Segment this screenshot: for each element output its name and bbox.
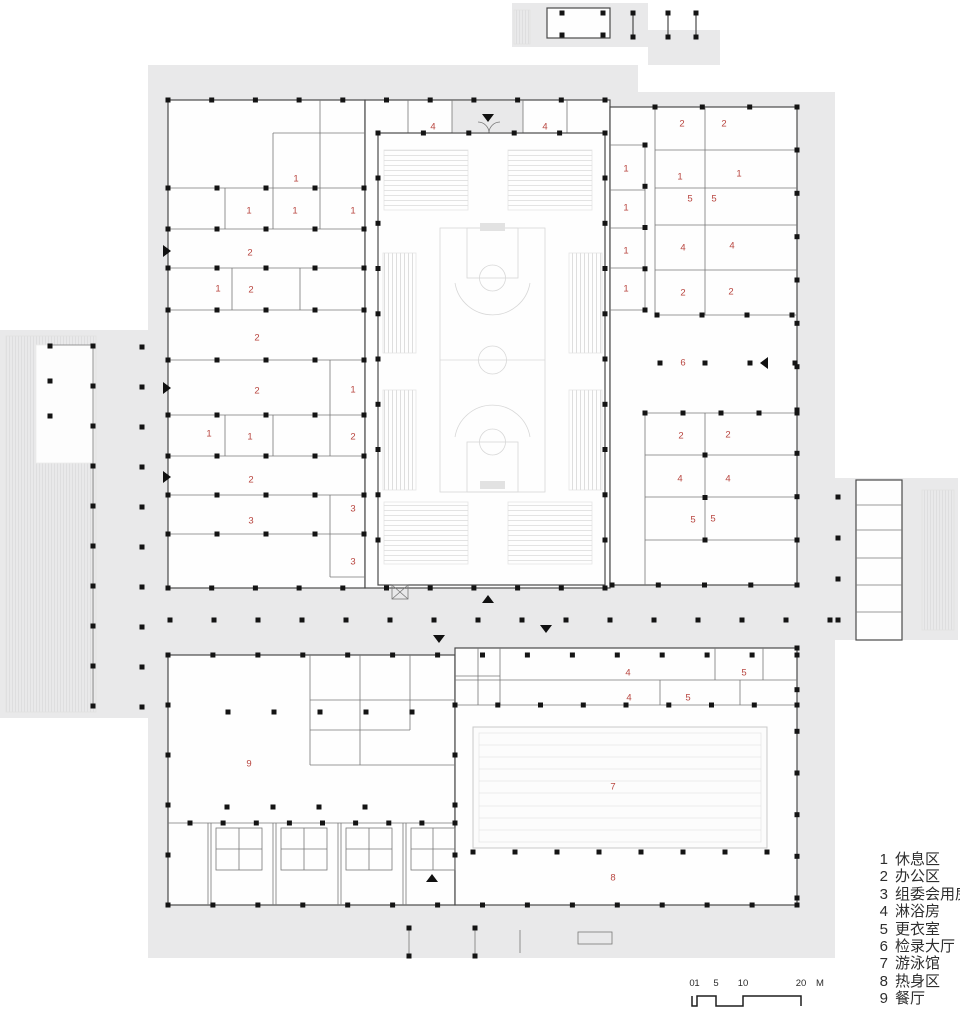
column-dot (264, 186, 269, 191)
room-label: 2 (728, 287, 733, 298)
legend-item: 5更衣室 (878, 921, 960, 938)
legend-item: 7游泳馆 (878, 955, 960, 972)
column-dot (795, 411, 800, 416)
column-dot (723, 850, 728, 855)
column-dot (297, 586, 302, 591)
column-dot (264, 413, 269, 418)
column-dot (48, 379, 53, 384)
column-dot (264, 266, 269, 271)
room-label: 5 (685, 693, 690, 704)
column-dot (353, 821, 358, 826)
column-dot (140, 705, 145, 710)
room-label: 5 (687, 194, 692, 205)
column-dot (255, 903, 260, 908)
column-dot (376, 357, 381, 362)
column-dot (300, 903, 305, 908)
column-dot (168, 618, 173, 623)
column-dot (525, 653, 530, 658)
column-dot (748, 361, 753, 366)
column-dot (363, 805, 368, 810)
column-dot (660, 903, 665, 908)
legend: 1休息区2办公区3组委会用房4淋浴房5更衣室6检录大厅7游泳馆8热身区9餐厅 (878, 851, 960, 1008)
column-dot (603, 402, 608, 407)
column-dot (603, 311, 608, 316)
column-dot (703, 538, 708, 543)
column-dot (140, 345, 145, 350)
column-dot (603, 538, 608, 543)
room-label: 1 (350, 206, 355, 217)
column-dot (166, 186, 171, 191)
column-dot (215, 454, 220, 459)
room-label: 2 (680, 288, 685, 299)
column-dot (376, 311, 381, 316)
column-dot (91, 384, 96, 389)
column-dot (344, 618, 349, 623)
arena-hall (378, 133, 605, 585)
room-label: 1 (292, 206, 297, 217)
room-label: 4 (725, 474, 730, 485)
legend-item-number: 5 (878, 921, 888, 938)
column-dot (597, 850, 602, 855)
column-dot (631, 11, 636, 16)
column-dot (795, 583, 800, 588)
legend-item-name: 更衣室 (895, 921, 940, 938)
column-dot (795, 896, 800, 901)
column-dot (166, 532, 171, 537)
column-dot (287, 821, 292, 826)
room-label: 1 (247, 432, 252, 443)
column-dot (188, 821, 193, 826)
column-dot (91, 344, 96, 349)
room-label: 4 (430, 122, 435, 133)
column-dot (253, 586, 258, 591)
column-dot (166, 227, 171, 232)
column-dot (836, 536, 841, 541)
legend-item-name: 热身区 (895, 973, 940, 990)
column-dot (740, 618, 745, 623)
room-label: 2 (254, 386, 259, 397)
column-dot (376, 176, 381, 181)
column-dot (681, 850, 686, 855)
column-dot (643, 308, 648, 313)
column-dot (432, 618, 437, 623)
column-dot (264, 308, 269, 313)
room-label: 2 (725, 430, 730, 441)
column-dot (471, 850, 476, 855)
column-dot (643, 143, 648, 148)
column-dot (603, 447, 608, 452)
column-dot (643, 411, 648, 416)
column-dot (362, 186, 367, 191)
room-label: 2 (721, 119, 726, 130)
column-dot (215, 266, 220, 271)
floor-plan-canvas: 4422111121221111115544226211122333224455… (0, 0, 960, 1013)
column-dot (421, 131, 426, 136)
column-dot (407, 926, 412, 931)
column-dot (272, 710, 277, 715)
column-dot (209, 98, 214, 103)
column-dot (264, 454, 269, 459)
column-dot (313, 493, 318, 498)
scale-bar-shape (683, 978, 853, 1013)
column-dot (757, 411, 762, 416)
room-label: 1 (293, 174, 298, 185)
west-ramp-wing (6, 336, 96, 712)
column-dot (666, 11, 671, 16)
legend-item: 1休息区 (878, 851, 960, 868)
column-dot (601, 11, 606, 16)
column-dot (615, 903, 620, 908)
column-dot (793, 361, 798, 366)
column-dot (653, 105, 658, 110)
column-dot (473, 926, 478, 931)
legend-item-name: 检录大厅 (895, 938, 955, 955)
column-dot (795, 451, 800, 456)
column-dot (795, 729, 800, 734)
column-dot (225, 805, 230, 810)
column-dot (419, 821, 424, 826)
column-dot (795, 812, 800, 817)
column-dot (603, 266, 608, 271)
column-dot (362, 493, 367, 498)
column-dot (466, 131, 471, 136)
column-dot (515, 98, 520, 103)
legend-item-number: 3 (878, 886, 888, 903)
column-dot (719, 411, 724, 416)
room-label: 1 (623, 203, 628, 214)
column-dot (376, 447, 381, 452)
column-dot (376, 538, 381, 543)
column-dot (215, 227, 220, 232)
column-dot (658, 361, 663, 366)
column-dot (140, 465, 145, 470)
column-dot (828, 618, 833, 623)
column-dot (790, 313, 795, 318)
column-dot (570, 903, 575, 908)
column-dot (317, 805, 322, 810)
room-label: 4 (625, 668, 630, 679)
column-dot (747, 105, 752, 110)
column-dot (386, 821, 391, 826)
column-dot (376, 266, 381, 271)
column-dot (318, 710, 323, 715)
column-dot (795, 854, 800, 859)
column-dot (603, 492, 608, 497)
column-dot (166, 454, 171, 459)
legend-item-name: 淋浴房 (895, 903, 940, 920)
column-dot (560, 11, 565, 16)
column-dot (643, 266, 648, 271)
column-dot (140, 425, 145, 430)
column-dot (601, 33, 606, 38)
column-dot (313, 532, 318, 537)
room-label: 2 (247, 248, 252, 259)
column-dot (795, 278, 800, 283)
column-dot (795, 903, 800, 908)
column-dot (836, 577, 841, 582)
column-dot (512, 131, 517, 136)
column-dot (364, 710, 369, 715)
column-dot (210, 653, 215, 658)
column-dot (666, 35, 671, 40)
column-dot (313, 454, 318, 459)
room-label: 4 (542, 122, 547, 133)
legend-item-number: 2 (878, 868, 888, 885)
column-dot (520, 618, 525, 623)
column-dot (615, 653, 620, 658)
column-dot (215, 532, 220, 537)
column-dot (362, 358, 367, 363)
column-dot (390, 903, 395, 908)
legend-item: 9餐厅 (878, 990, 960, 1007)
column-dot (166, 753, 171, 758)
column-dot (515, 586, 520, 591)
room-label: 2 (248, 285, 253, 296)
column-dot (453, 803, 458, 808)
room-label: 4 (626, 693, 631, 704)
room-label: 2 (679, 119, 684, 130)
column-dot (703, 361, 708, 366)
upper-building (168, 100, 797, 599)
column-dot (705, 903, 710, 908)
column-dot (603, 586, 608, 591)
column-dot (784, 618, 789, 623)
column-dot (376, 131, 381, 136)
column-dot (560, 33, 565, 38)
column-dot (603, 357, 608, 362)
room-label: 9 (246, 759, 251, 770)
column-dot (559, 98, 564, 103)
scale-bar: 0151020M (683, 978, 853, 1013)
legend-item: 2办公区 (878, 868, 960, 885)
column-dot (525, 903, 530, 908)
room-label: 1 (736, 169, 741, 180)
column-dot (795, 148, 800, 153)
column-dot (480, 903, 485, 908)
column-dot (696, 618, 701, 623)
column-dot (660, 653, 665, 658)
column-dot (362, 227, 367, 232)
column-dot (215, 493, 220, 498)
column-dot (166, 703, 171, 708)
column-dot (362, 454, 367, 459)
column-dot (384, 98, 389, 103)
column-dot (166, 903, 171, 908)
column-dot (480, 653, 485, 658)
column-dot (610, 583, 615, 588)
column-dot (313, 413, 318, 418)
column-dot (140, 625, 145, 630)
room-label: 4 (729, 241, 734, 252)
column-dot (748, 583, 753, 588)
column-dot (559, 586, 564, 591)
column-dot (694, 11, 699, 16)
column-dot (166, 853, 171, 858)
column-dot (320, 821, 325, 826)
column-dot (166, 98, 171, 103)
column-dot (91, 544, 96, 549)
column-dot (313, 358, 318, 363)
column-dot (362, 532, 367, 537)
column-dot (453, 703, 458, 708)
room-label: 2 (254, 333, 259, 344)
column-dot (166, 413, 171, 418)
column-dot (166, 266, 171, 271)
room-label: 5 (741, 668, 746, 679)
legend-item-name: 游泳馆 (895, 955, 940, 972)
column-dot (750, 653, 755, 658)
legend-item-number: 4 (878, 903, 888, 920)
column-dot (407, 954, 412, 959)
column-dot (555, 850, 560, 855)
column-dot (209, 586, 214, 591)
column-dot (226, 710, 231, 715)
column-dot (384, 586, 389, 591)
room-label: 6 (680, 358, 685, 369)
column-dot (652, 618, 657, 623)
column-dot (215, 358, 220, 363)
legend-item: 8热身区 (878, 973, 960, 990)
column-dot (362, 266, 367, 271)
column-dot (166, 803, 171, 808)
column-dot (639, 850, 644, 855)
column-dot (700, 313, 705, 318)
column-dot (376, 402, 381, 407)
column-dot (313, 227, 318, 232)
column-dot (570, 653, 575, 658)
legend-item: 4淋浴房 (878, 903, 960, 920)
column-dot (362, 308, 367, 313)
column-dot (702, 583, 707, 588)
column-dot (91, 424, 96, 429)
column-dot (750, 903, 755, 908)
column-dot (256, 618, 261, 623)
room-label: 1 (246, 206, 251, 217)
column-dot (581, 703, 586, 708)
column-dot (166, 308, 171, 313)
legend-item-number: 1 (878, 851, 888, 868)
column-dot (91, 624, 96, 629)
column-dot (471, 98, 476, 103)
column-dot (362, 413, 367, 418)
column-dot (473, 954, 478, 959)
legend-item-name: 办公区 (895, 868, 940, 885)
column-dot (453, 753, 458, 758)
column-dot (795, 653, 800, 658)
column-dot (254, 821, 259, 826)
column-dot (345, 903, 350, 908)
column-dot (313, 308, 318, 313)
column-dot (666, 703, 671, 708)
column-dot (140, 545, 145, 550)
column-dot (603, 131, 608, 136)
column-dot (703, 495, 708, 500)
column-dot (376, 221, 381, 226)
floor-plan-drawing: 4422111121221111115544226211122333224455… (0, 0, 960, 1013)
legend-item: 3组委会用房 (878, 886, 960, 903)
column-dot (745, 313, 750, 318)
column-dot (795, 646, 800, 651)
column-dot (345, 653, 350, 658)
column-dot (313, 186, 318, 191)
column-dot (538, 703, 543, 708)
column-dot (340, 586, 345, 591)
column-dot (215, 413, 220, 418)
room-label: 2 (678, 431, 683, 442)
column-dot (564, 618, 569, 623)
column-dot (795, 703, 800, 708)
column-dot (435, 903, 440, 908)
column-dot (795, 538, 800, 543)
column-dot (471, 586, 476, 591)
room-label: 1 (677, 172, 682, 183)
column-dot (428, 98, 433, 103)
column-dot (166, 586, 171, 591)
column-dot (255, 653, 260, 658)
column-dot (608, 618, 613, 623)
column-dot (428, 586, 433, 591)
column-dot (221, 821, 226, 826)
room-label: 4 (677, 474, 682, 485)
column-dot (694, 35, 699, 40)
legend-item-name: 餐厅 (895, 990, 925, 1007)
column-dot (513, 850, 518, 855)
room-label: 1 (623, 164, 628, 175)
legend-item-number: 8 (878, 973, 888, 990)
column-dot (91, 584, 96, 589)
room-label: 1 (206, 429, 211, 440)
column-dot (300, 653, 305, 658)
column-dot (140, 385, 145, 390)
column-dot (410, 710, 415, 715)
room-label: 3 (350, 557, 355, 568)
column-dot (210, 903, 215, 908)
room-label: 8 (610, 873, 615, 884)
room-label: 1 (623, 284, 628, 295)
room-label: 5 (710, 514, 715, 525)
column-dot (48, 414, 53, 419)
column-dot (765, 850, 770, 855)
column-dot (376, 492, 381, 497)
column-dot (313, 266, 318, 271)
column-dot (453, 853, 458, 858)
column-dot (215, 308, 220, 313)
legend-item-number: 7 (878, 955, 888, 972)
column-dot (453, 821, 458, 826)
room-label: 3 (248, 516, 253, 527)
room-label: 1 (350, 385, 355, 396)
column-dot (476, 618, 481, 623)
legend-item-name: 休息区 (895, 851, 940, 868)
column-dot (795, 105, 800, 110)
column-dot (795, 771, 800, 776)
column-dot (166, 358, 171, 363)
room-label: 1 (215, 284, 220, 295)
column-dot (166, 493, 171, 498)
column-dot (495, 703, 500, 708)
column-dot (140, 505, 145, 510)
column-dot (435, 653, 440, 658)
column-dot (603, 176, 608, 181)
legend-item-number: 9 (878, 990, 888, 1007)
column-dot (836, 495, 841, 500)
column-dot (655, 313, 660, 318)
column-dot (643, 225, 648, 230)
column-dot (271, 805, 276, 810)
column-dot (631, 35, 636, 40)
column-dot (140, 585, 145, 590)
column-dot (681, 411, 686, 416)
